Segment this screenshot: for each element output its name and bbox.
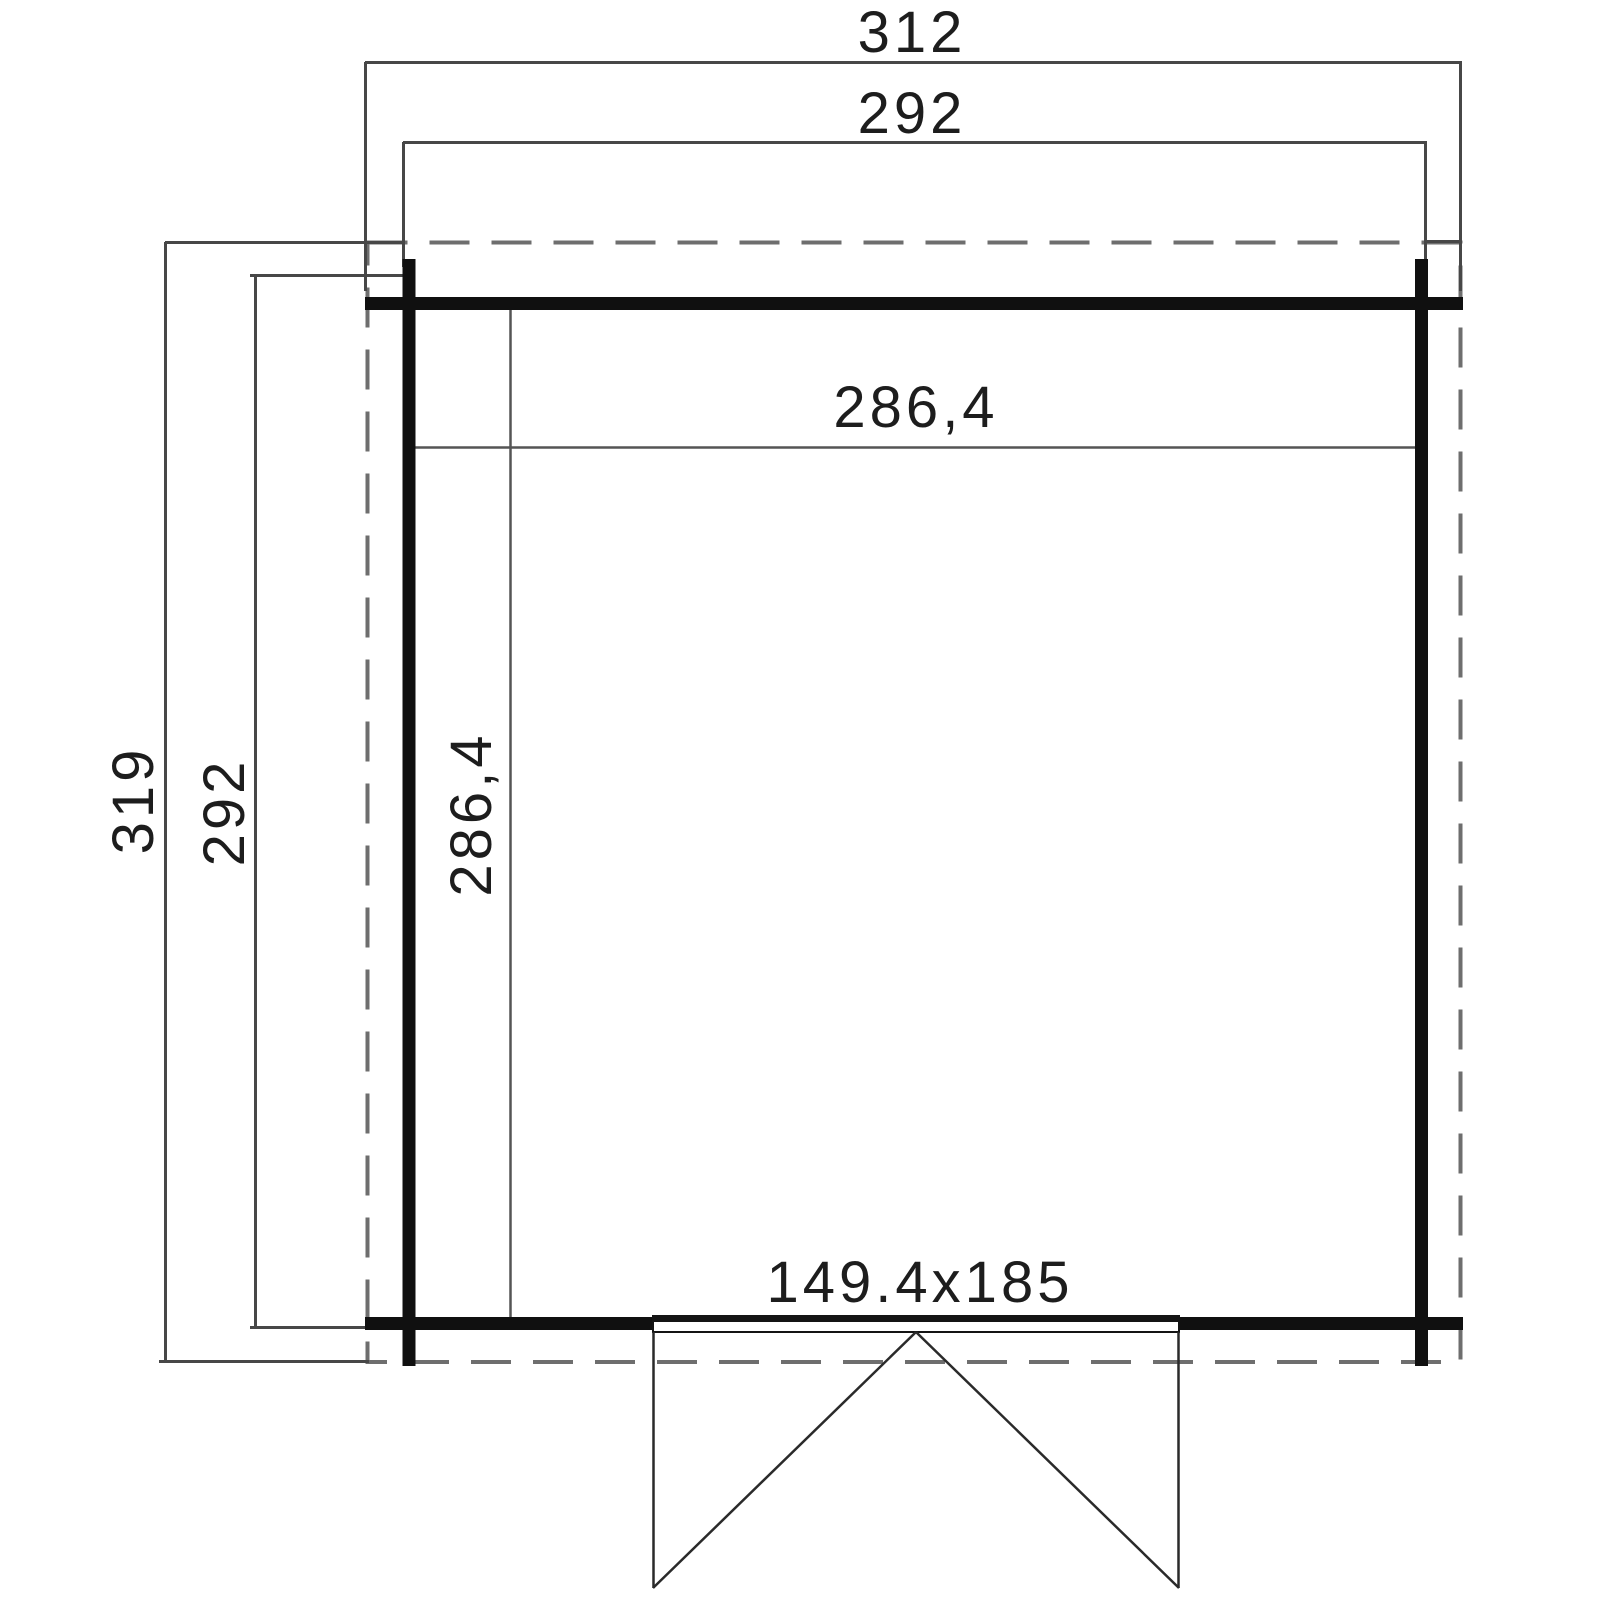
dim-label-outer-depth: 319: [105, 746, 163, 855]
dim-label-door-size: 149.4x185: [767, 1254, 1074, 1312]
dim-label-wall-width: 292: [858, 85, 967, 143]
floor-plan: 312 292 286,4 319 292 286,4 149.4x185: [0, 0, 1600, 1600]
dim-label-interior-depth: 286,4: [443, 731, 501, 896]
door-swing-right: [916, 1332, 1179, 1588]
dim-label-interior-width: 286,4: [833, 379, 998, 437]
dim-label-wall-depth: 292: [196, 758, 254, 867]
dim-label-outer-width: 312: [858, 4, 967, 62]
door-swing-left: [653, 1332, 916, 1588]
